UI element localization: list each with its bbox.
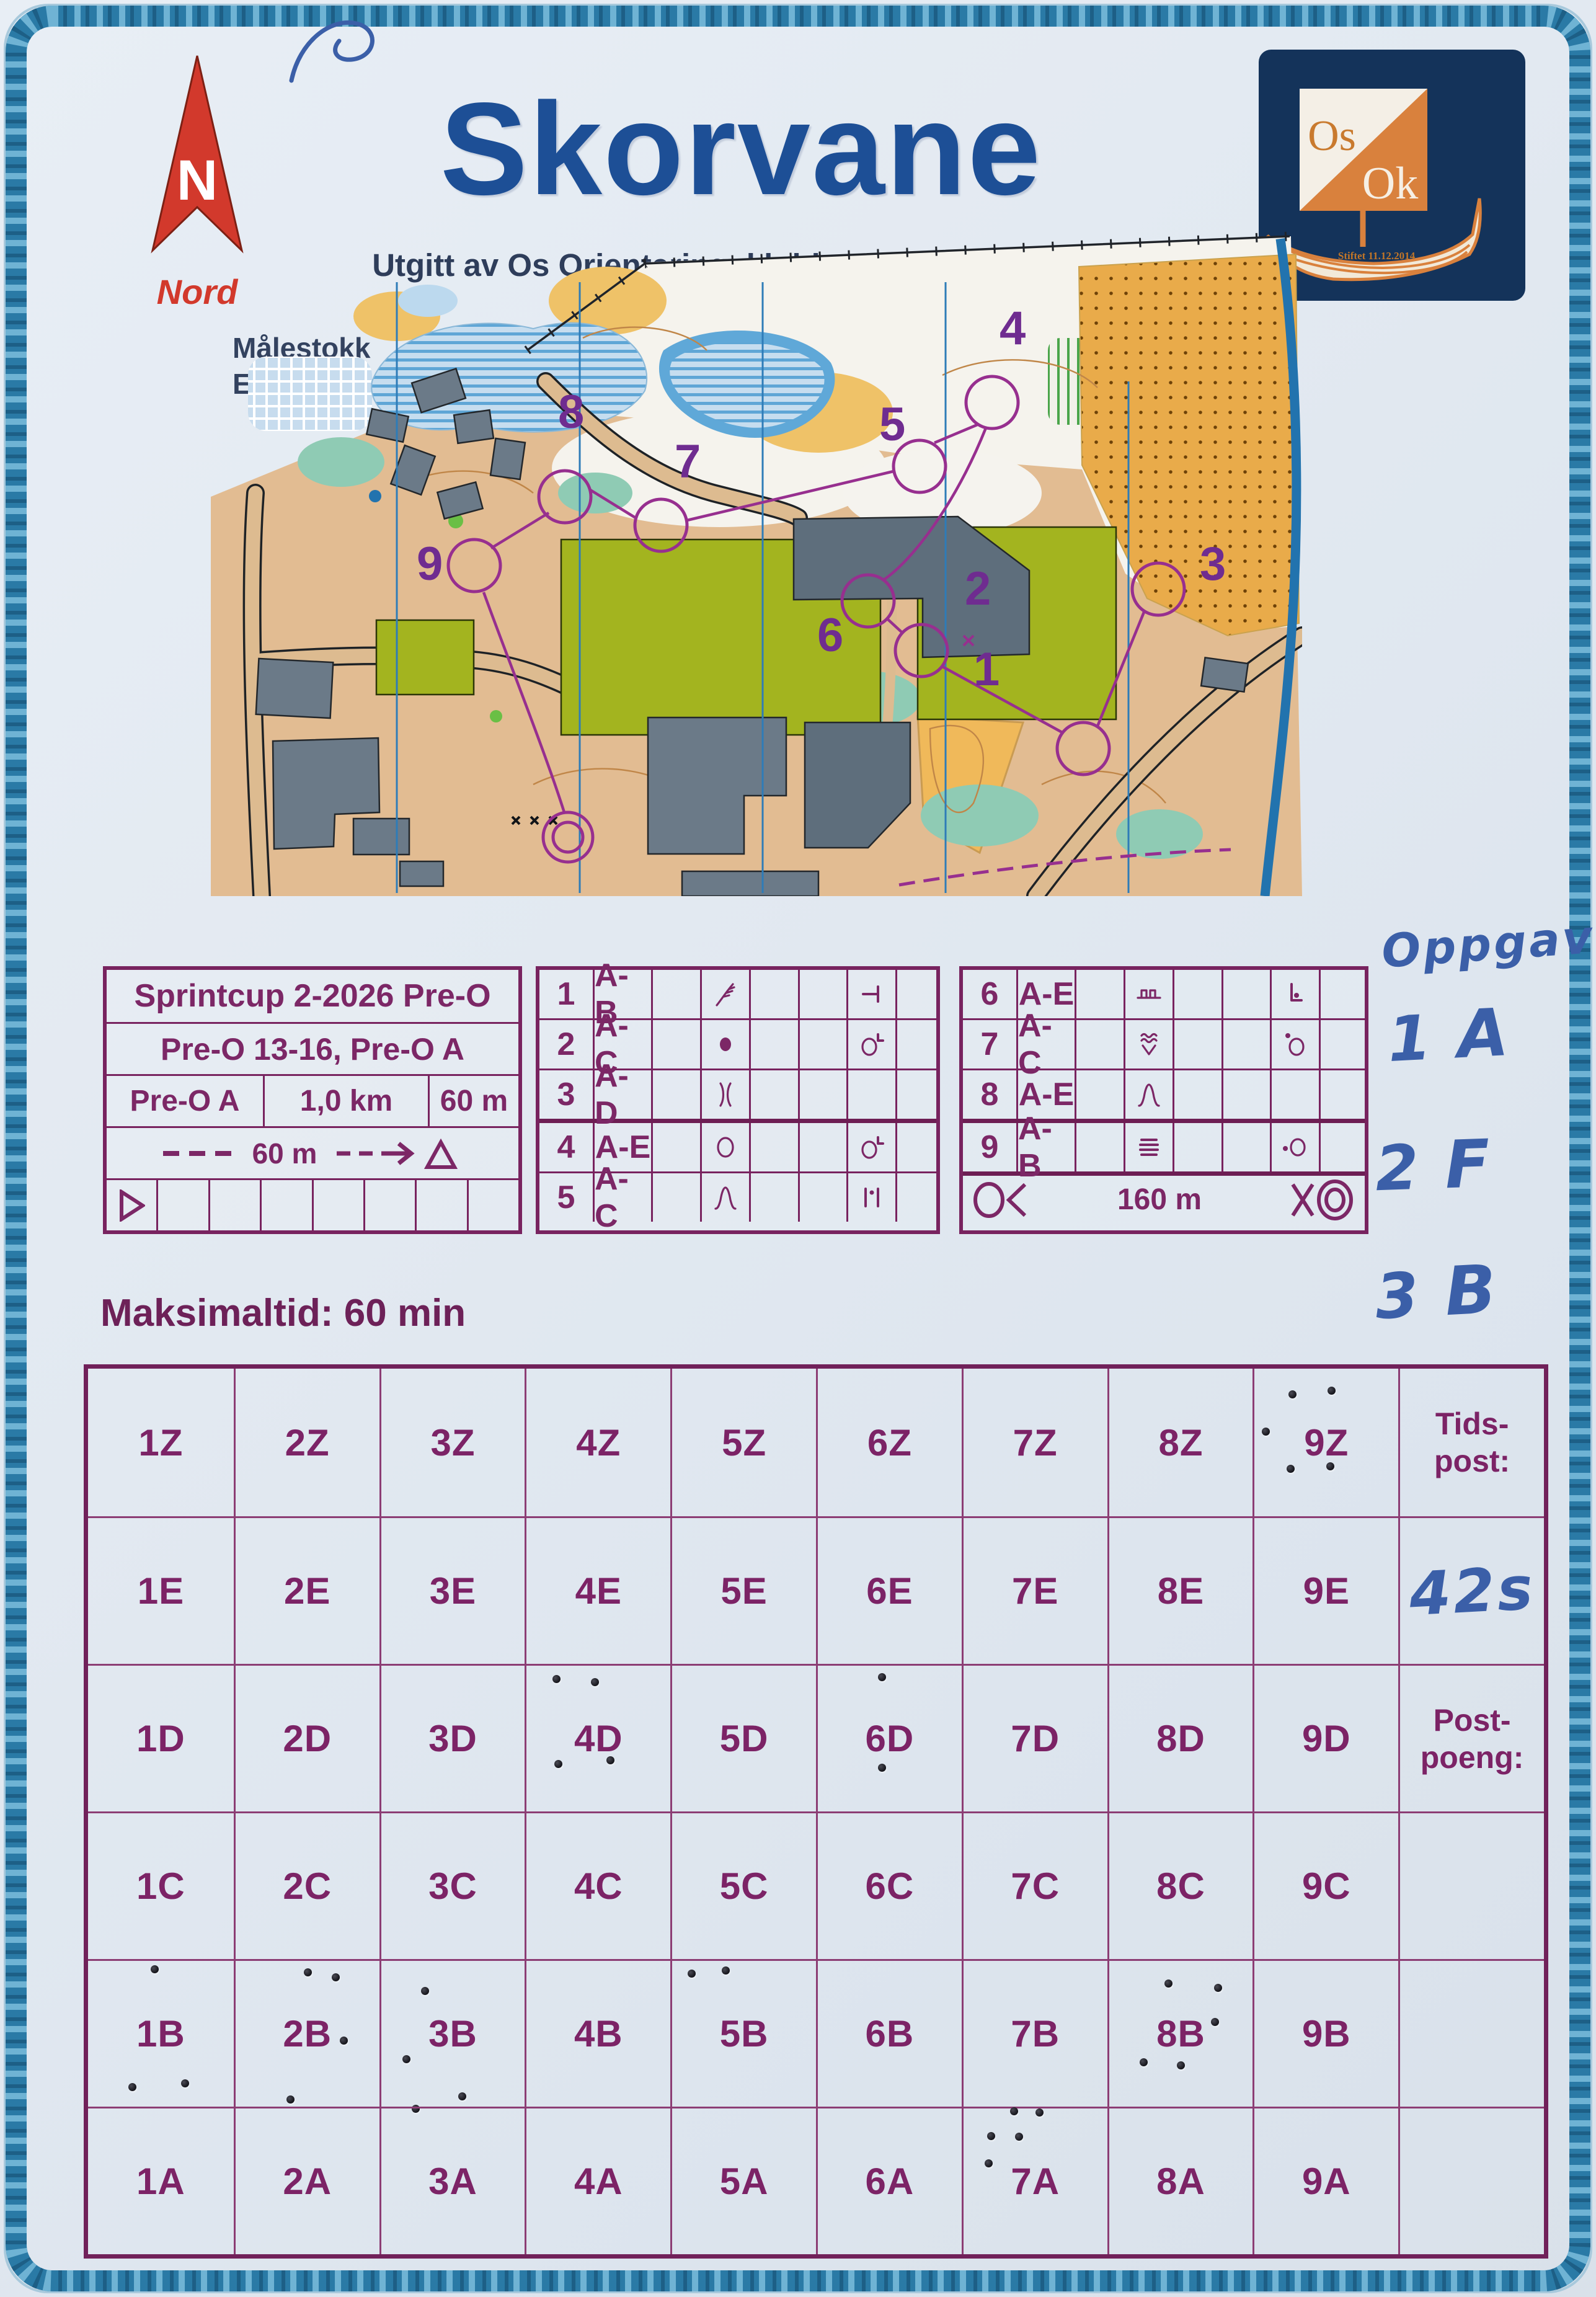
desc-cell xyxy=(1173,1020,1221,1069)
answer-cell-3C[interactable]: 3C xyxy=(379,1811,525,1959)
punch-mark xyxy=(181,2079,189,2087)
stairway-icon xyxy=(1135,1134,1163,1161)
answer-cell-label: 9E xyxy=(1303,1570,1350,1612)
answer-cell-1Z[interactable]: 1Z xyxy=(88,1369,234,1516)
answer-cell-label: 7C xyxy=(1011,1865,1060,1908)
answer-cell-label: 7Z xyxy=(1013,1421,1058,1464)
desc-cell xyxy=(1319,1070,1365,1119)
desc-cell xyxy=(1221,1020,1270,1069)
control-number-cell: 8 xyxy=(963,1070,1016,1119)
event-name: Sprintcup 2-2026 Pre-O xyxy=(107,970,518,1022)
feature-symbol-cell xyxy=(700,1020,749,1069)
answer-cell-label: 3D xyxy=(428,1717,477,1760)
answer-cell-label: 8D xyxy=(1156,1717,1205,1760)
answer-cell-label: 7E xyxy=(1012,1570,1058,1612)
answer-cell-label: 2D xyxy=(283,1717,332,1760)
answer-cell-label: 5Z xyxy=(722,1421,766,1464)
modifier-symbol-cell xyxy=(846,1123,895,1171)
answer-cell-5E[interactable]: 5E xyxy=(670,1516,816,1664)
punch-mark xyxy=(151,1965,159,1973)
punch-mark xyxy=(421,1987,429,1995)
modifier-symbol-cell xyxy=(846,1173,895,1222)
answer-cell-label: 8C xyxy=(1156,1865,1205,1908)
answer-cell-label: 2A xyxy=(283,2160,332,2203)
answer-cell-9C[interactable]: 9C xyxy=(1252,1811,1398,1959)
answer-cell-label: 3E xyxy=(430,1570,476,1612)
modifier-symbol-cell xyxy=(846,1020,895,1069)
answer-cell-label: 3Z xyxy=(430,1421,475,1464)
course-length: 1,0 km xyxy=(265,1076,430,1126)
answer-cell-label: 2B xyxy=(283,2012,332,2055)
desc-cell xyxy=(895,1123,936,1171)
control-number-cell: 4 xyxy=(539,1123,593,1171)
answer-cell-1D[interactable]: 1D xyxy=(88,1664,234,1811)
answer-range-cell: A-C xyxy=(593,1173,651,1222)
answer-cell-label: 1A xyxy=(136,2160,185,2203)
start-distance: 60 m xyxy=(252,1137,317,1170)
points-label: Post- poeng: xyxy=(1421,1702,1524,1776)
modifier-symbol-cell xyxy=(846,970,895,1018)
punch-mark xyxy=(1211,2018,1219,2026)
answer-cell-4B[interactable]: 4B xyxy=(525,1959,670,2107)
answer-cell-label: 6A xyxy=(866,2160,915,2203)
control-number-cell: 2 xyxy=(539,1020,593,1069)
svg-text:4: 4 xyxy=(1000,302,1026,355)
answer-cell-label: 4D xyxy=(574,1717,623,1760)
handwritten-answer-3: 3 B xyxy=(1373,1251,1501,1335)
desc-cell xyxy=(651,1173,700,1222)
answer-cell-7E[interactable]: 7E xyxy=(962,1516,1107,1664)
answer-cell-label: 8B xyxy=(1156,2012,1205,2055)
svg-text:2: 2 xyxy=(965,562,991,615)
answer-cell-label: 9B xyxy=(1302,2012,1351,2055)
answer-cell-label: 3B xyxy=(428,2012,477,2055)
answer-cell-7Z[interactable]: 7Z xyxy=(962,1369,1107,1516)
hill-icon xyxy=(1135,1081,1163,1108)
feature-symbol-cell xyxy=(1124,1020,1173,1069)
desc-cell xyxy=(1319,1020,1365,1069)
hill-icon xyxy=(712,1184,739,1211)
empty-side-cell xyxy=(1398,1959,1544,2107)
answer-cell-label: 1C xyxy=(136,1865,185,1908)
answer-cell-9E[interactable]: 9E xyxy=(1252,1516,1398,1664)
punch-mark xyxy=(1140,2058,1148,2066)
answer-range-cell: A-B xyxy=(1016,1123,1075,1171)
control-description-row: 9A-B xyxy=(963,1119,1365,1171)
time-control-answer-cell[interactable]: 42s xyxy=(1398,1516,1544,1664)
answer-cell-7A[interactable]: 7A xyxy=(962,2107,1107,2254)
between-bars-icon xyxy=(859,1184,884,1211)
control-descriptions-table-2: 6A-E7A-C8A-E9A-B 160 m xyxy=(959,966,1368,1234)
desc-cell xyxy=(749,1070,798,1119)
desc-cell xyxy=(651,970,700,1018)
answer-cell-9Z[interactable]: 9Z xyxy=(1252,1369,1398,1516)
desc-cell xyxy=(651,1123,700,1171)
answer-cell-9A[interactable]: 9A xyxy=(1252,2107,1398,2254)
desc-cell xyxy=(749,1020,798,1069)
answer-cell-label: 1B xyxy=(136,2012,185,2055)
logo-sub-text: Stiftet 11.12.2014 xyxy=(1338,250,1416,262)
punch-mark xyxy=(987,2132,995,2140)
answer-cell-8C[interactable]: 8C xyxy=(1107,1811,1253,1959)
answer-cell-6B[interactable]: 6B xyxy=(816,1959,962,2107)
control-number-cell: 6 xyxy=(963,970,1016,1018)
answer-cell-2A[interactable]: 2A xyxy=(234,2107,379,2254)
rootstock-icon xyxy=(1135,1031,1163,1058)
desc-cell xyxy=(1075,1123,1124,1171)
answer-cell-4C[interactable]: 4C xyxy=(525,1811,670,1959)
circle-corner-icon xyxy=(858,1132,885,1162)
answer-cell-8A[interactable]: 8A xyxy=(1107,2107,1253,2254)
desc-cell xyxy=(749,970,798,1018)
punch-mark xyxy=(1288,1390,1297,1398)
dot-circle-icon xyxy=(1280,1134,1310,1161)
answer-cell-label: 4Z xyxy=(576,1421,621,1464)
answer-cell-label: 6Z xyxy=(867,1421,912,1464)
answer-cell-label: 5B xyxy=(720,2012,769,2055)
answer-cell-label: 5C xyxy=(720,1865,769,1908)
answer-cell-label: 1Z xyxy=(138,1421,183,1464)
thicket-icon xyxy=(713,1134,738,1161)
punch-mark xyxy=(985,2159,993,2167)
timed-start-icon xyxy=(972,1181,1031,1219)
wall-icon xyxy=(1135,980,1163,1008)
modifier-symbol-cell xyxy=(846,1070,895,1119)
desc-cell xyxy=(1173,1070,1221,1119)
desc-cell xyxy=(1221,970,1270,1018)
answer-cell-8B[interactable]: 8B xyxy=(1107,1959,1253,2107)
dashes-icon xyxy=(161,1147,235,1160)
modifier-symbol-cell xyxy=(1270,1020,1319,1069)
svg-text:9: 9 xyxy=(417,538,443,590)
punch-mark xyxy=(1287,1465,1295,1473)
modifier-symbol-cell xyxy=(1270,1123,1319,1171)
answer-cell-label: 6E xyxy=(866,1570,913,1612)
answer-grid: 1Z2Z3Z4Z5Z6Z7Z8Z9ZTids- post:1E2E3E4E5E6… xyxy=(84,1364,1548,2259)
answer-cell-label: 1E xyxy=(138,1570,184,1612)
handwritten-answer-1: 1 A xyxy=(1386,994,1513,1077)
answer-cell-label: 8Z xyxy=(1158,1421,1203,1464)
answer-cell-6D[interactable]: 6D xyxy=(816,1664,962,1811)
answer-cell-label: 3C xyxy=(428,1865,477,1908)
answer-cell-2D[interactable]: 2D xyxy=(234,1664,379,1811)
answer-cell-6C[interactable]: 6C xyxy=(816,1811,962,1959)
answer-cell-label: 4A xyxy=(574,2160,623,2203)
answer-cell-3B[interactable]: 3B xyxy=(379,1959,525,2107)
answer-cell-label: 6B xyxy=(866,2012,915,2055)
desc-cell xyxy=(1319,1123,1365,1171)
answer-cell-label: 8A xyxy=(1156,2160,1205,2203)
answer-cell-8D[interactable]: 8D xyxy=(1107,1664,1253,1811)
answer-cell-7B[interactable]: 7B xyxy=(962,1959,1107,2107)
svg-text:1: 1 xyxy=(973,643,1000,696)
answer-cell-label: 7B xyxy=(1011,2012,1060,2055)
answer-cell-3A[interactable]: 3A xyxy=(379,2107,525,2254)
punch-mark xyxy=(1010,2107,1018,2115)
answer-cell-1E[interactable]: 1E xyxy=(88,1516,234,1664)
answer-cell-label: 1D xyxy=(136,1717,185,1760)
answer-cell-3E[interactable]: 3E xyxy=(379,1516,525,1664)
punch-mark xyxy=(1015,2133,1023,2141)
answer-cell-8E[interactable]: 8E xyxy=(1107,1516,1253,1664)
answer-cell-4D[interactable]: 4D xyxy=(525,1664,670,1811)
feature-symbol-cell xyxy=(700,1070,749,1119)
desc-cell xyxy=(651,1070,700,1119)
answer-cell-label: 5E xyxy=(720,1570,767,1612)
answer-cell-1C[interactable]: 1C xyxy=(88,1811,234,1959)
desc-cell xyxy=(1319,970,1365,1018)
desc-cell xyxy=(1075,1070,1124,1119)
feature-symbol-cell xyxy=(700,1173,749,1222)
desc-cell xyxy=(1221,1123,1270,1171)
answer-cell-7C[interactable]: 7C xyxy=(962,1811,1107,1959)
desc-cell xyxy=(895,1020,936,1069)
dash-arrow-start-triangle-icon xyxy=(334,1134,464,1173)
answer-cell-label: 5D xyxy=(720,1717,769,1760)
answer-cell-label: 7A xyxy=(1011,2160,1060,2203)
desc-cell xyxy=(1075,970,1124,1018)
answer-cell-6A[interactable]: 6A xyxy=(816,2107,962,2254)
punch-mark xyxy=(1177,2061,1185,2069)
timed-control-row: 160 m xyxy=(963,1171,1365,1224)
answer-cell-label: 2C xyxy=(283,1865,332,1908)
desc-cell xyxy=(895,1070,936,1119)
answer-range-cell: A-D xyxy=(593,1070,651,1119)
answer-cell-label: 2E xyxy=(284,1570,330,1612)
svg-text:6: 6 xyxy=(817,609,843,662)
punch-mark xyxy=(340,2037,348,2045)
desc-cell xyxy=(749,1173,798,1222)
answer-cell-1B[interactable]: 1B xyxy=(88,1959,234,2107)
control-descriptions-table-1: 1A-B2A-C3A-D4A-E5A-C xyxy=(536,966,940,1234)
desc-cell xyxy=(798,1123,846,1171)
answer-cell-label: 4B xyxy=(574,2012,623,2055)
svg-text:5: 5 xyxy=(879,398,905,451)
answer-cell-9D[interactable]: 9D xyxy=(1252,1664,1398,1811)
answer-cell-4E[interactable]: 4E xyxy=(525,1516,670,1664)
desc-cell xyxy=(1173,1123,1221,1171)
answer-cell-label: 9D xyxy=(1302,1717,1351,1760)
time-control-header-cell: Tids- post: xyxy=(1398,1369,1544,1516)
answer-cell-label: 3A xyxy=(428,2160,477,2203)
punch-mark xyxy=(304,1968,312,1976)
punch-mark xyxy=(1326,1462,1334,1470)
start-triangle-icon xyxy=(118,1189,145,1222)
punch-mark xyxy=(332,1973,340,1981)
answer-cell-3Z[interactable]: 3Z xyxy=(379,1369,525,1516)
max-time-label: Maksimaltid: 60 min xyxy=(100,1291,466,1335)
control-number-cell: 9 xyxy=(963,1123,1016,1171)
answer-cell-5B[interactable]: 5B xyxy=(670,1959,816,2107)
punch-mark xyxy=(458,2092,466,2100)
answer-cell-4A[interactable]: 4A xyxy=(525,2107,670,2254)
empty-side-cell xyxy=(1398,2107,1544,2254)
punch-mark xyxy=(1164,1979,1173,1988)
orienteering-map: 1 2 3 4 5 6 7 8 9 xyxy=(211,226,1302,896)
answer-cell-8Z[interactable]: 8Z xyxy=(1107,1369,1253,1516)
answer-cell-label: 9A xyxy=(1302,2160,1351,2203)
desc-cell xyxy=(798,970,846,1018)
answer-cell-label: 4E xyxy=(575,1570,622,1612)
punch-mark xyxy=(878,1673,886,1681)
finish-icon xyxy=(1288,1180,1356,1220)
desc-cell xyxy=(798,1070,846,1119)
punch-mark xyxy=(591,1678,599,1686)
punch-mark xyxy=(402,2055,410,2063)
answer-cell-6Z[interactable]: 6Z xyxy=(816,1369,962,1516)
page-title: Skorvane xyxy=(322,73,1159,224)
desc-cell xyxy=(749,1123,798,1171)
corner-dot-icon xyxy=(1283,980,1308,1008)
desc-cell xyxy=(895,970,936,1018)
answer-cell-6E[interactable]: 6E xyxy=(816,1516,962,1664)
answer-cell-label: 9C xyxy=(1302,1865,1351,1908)
circle-corner-icon xyxy=(858,1029,885,1059)
answer-cell-2Z[interactable]: 2Z xyxy=(234,1369,379,1516)
answer-cell-label: 4C xyxy=(574,1865,623,1908)
punch-mark xyxy=(128,2083,136,2091)
punch-mark xyxy=(286,2095,295,2104)
logo-top-text: Os xyxy=(1308,112,1356,160)
answer-cell-9B[interactable]: 9B xyxy=(1252,1959,1398,2107)
answer-range-cell: A-C xyxy=(1016,1020,1075,1069)
punch-mark xyxy=(1214,1984,1222,1992)
feature-symbol-cell xyxy=(1124,970,1173,1018)
feature-symbol-cell xyxy=(1124,1123,1173,1171)
answer-cell-5Z[interactable]: 5Z xyxy=(670,1369,816,1516)
feature-symbol-cell xyxy=(700,970,749,1018)
control-description-row: 3A-D xyxy=(539,1069,936,1119)
control-description-row: 5A-C xyxy=(539,1171,936,1222)
desc-cell xyxy=(798,1173,846,1222)
class-names: Pre-O 13-16, Pre-O A xyxy=(107,1022,518,1074)
svg-text:7: 7 xyxy=(675,435,701,488)
punch-mark xyxy=(1262,1428,1270,1436)
event-sheet-page: N Nord Skorvane Utgitt av Os Orientering… xyxy=(0,0,1596,2297)
desc-cell xyxy=(1075,1020,1124,1069)
desc-cell xyxy=(1221,1070,1270,1119)
punch-mark xyxy=(606,1756,614,1764)
t-bar-icon xyxy=(859,982,884,1006)
answer-cell-2B[interactable]: 2B xyxy=(234,1959,379,2107)
course-name: Pre-O A xyxy=(107,1076,265,1126)
logo-bottom-text: Ok xyxy=(1362,158,1418,209)
answer-cell-label: 2Z xyxy=(285,1421,330,1464)
circle-dot-top-icon xyxy=(1282,1029,1309,1059)
punch-mark xyxy=(878,1764,886,1772)
answer-cell-label: 9Z xyxy=(1304,1421,1349,1464)
start-distance-row: 60 m xyxy=(107,1126,518,1178)
answer-cell-2E[interactable]: 2E xyxy=(234,1516,379,1664)
saddle-icon xyxy=(713,1081,738,1108)
answer-cell-5C[interactable]: 5C xyxy=(670,1811,816,1959)
feature-symbol-cell xyxy=(1124,1070,1173,1119)
punch-mark xyxy=(1328,1387,1336,1395)
answer-cell-label: 6D xyxy=(866,1717,915,1760)
punch-mark xyxy=(722,1966,730,1975)
modifier-symbol-cell xyxy=(1270,1070,1319,1119)
answer-cell-5A[interactable]: 5A xyxy=(670,2107,816,2254)
timed-distance: 160 m xyxy=(1031,1183,1288,1217)
answer-cell-2C[interactable]: 2C xyxy=(234,1811,379,1959)
svg-text:N: N xyxy=(177,149,218,212)
answer-cell-5D[interactable]: 5D xyxy=(670,1664,816,1811)
handwritten-answer-2: 2 F xyxy=(1374,1126,1494,1206)
control-number-cell: 5 xyxy=(539,1173,593,1222)
desc-cell xyxy=(895,1173,936,1222)
svg-text:8: 8 xyxy=(558,386,584,438)
handwritten-time: 42s xyxy=(1408,1553,1536,1628)
answer-cell-3D[interactable]: 3D xyxy=(379,1664,525,1811)
svg-text:3: 3 xyxy=(1200,538,1226,590)
boulder-icon xyxy=(713,1031,738,1058)
control-number-cell: 3 xyxy=(539,1070,593,1119)
desc-cell xyxy=(1173,970,1221,1018)
punch-mark xyxy=(554,1760,562,1768)
control-description-row: 7A-C xyxy=(963,1018,1365,1069)
answer-cell-label: 5A xyxy=(720,2160,769,2203)
cliff-icon xyxy=(713,980,738,1008)
answer-cell-label: 6C xyxy=(866,1865,915,1908)
answer-cell-label: 8E xyxy=(1158,1570,1204,1612)
answer-cell-7D[interactable]: 7D xyxy=(962,1664,1107,1811)
punch-mark xyxy=(688,1970,696,1978)
punch-mark xyxy=(1035,2108,1044,2117)
modifier-symbol-cell xyxy=(1270,970,1319,1018)
control-number-cell: 1 xyxy=(539,970,593,1018)
answer-cell-1A[interactable]: 1A xyxy=(88,2107,234,2254)
empty-side-cell xyxy=(1398,1811,1544,1959)
desc-cell xyxy=(651,1020,700,1069)
course-header-table: Sprintcup 2-2026 Pre-O Pre-O 13-16, Pre-… xyxy=(103,966,522,1234)
punch-mark xyxy=(552,1675,561,1683)
answer-cell-label: 7D xyxy=(1011,1717,1060,1760)
feature-symbol-cell xyxy=(700,1123,749,1171)
time-control-label: Tids- post: xyxy=(1434,1405,1510,1480)
control-number-cell: 7 xyxy=(963,1020,1016,1069)
course-climb: 60 m xyxy=(430,1076,518,1126)
desc-cell xyxy=(798,1020,846,1069)
answer-cell-4Z[interactable]: 4Z xyxy=(525,1369,670,1516)
points-header-cell: Post- poeng: xyxy=(1398,1664,1544,1811)
